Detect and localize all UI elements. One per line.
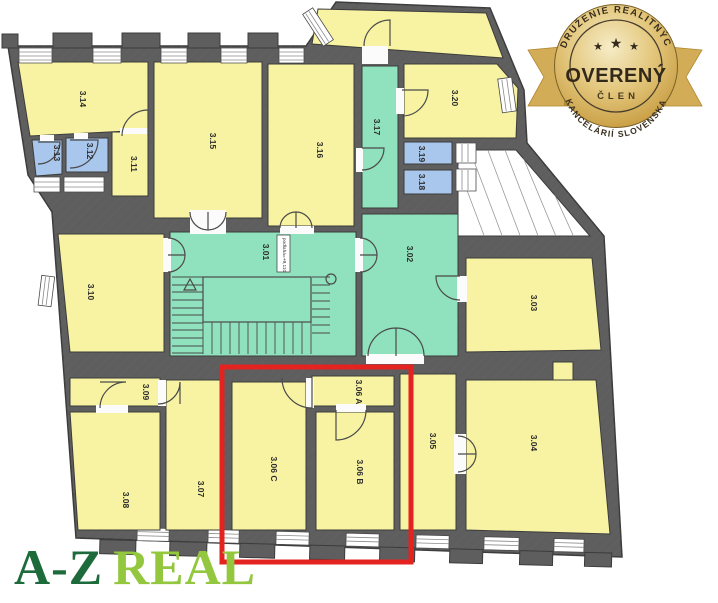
room-label-3-13: 3.13: [52, 145, 62, 162]
room-3-08: [70, 412, 160, 530]
room-label-3-11: 3.11: [129, 156, 139, 172]
room-3-04-niche: [553, 362, 573, 380]
badge-subtitle: ČLEN: [597, 90, 639, 102]
room-label-3-06b: 3.06 B: [355, 459, 365, 484]
badge-title: OVERENÝ: [565, 63, 666, 87]
room-label-3-06a: 3.06 A: [354, 380, 364, 405]
room-3-06b: [316, 412, 394, 530]
badge-star-right: ★: [629, 40, 639, 53]
room-3-16: [268, 64, 354, 226]
room-3-10: [58, 234, 164, 352]
room-3-07: [166, 380, 224, 530]
room-label-3-17: 3.17: [372, 119, 382, 136]
courtyard: [458, 150, 590, 236]
room-3-15: [154, 62, 262, 218]
room-label-3-09: 3.09: [141, 384, 151, 401]
room-label-3-06c: 3.06 C: [269, 456, 279, 481]
room-3-10-window: [38, 275, 55, 306]
sill-windows: [34, 177, 104, 192]
room-label-3-07: 3.07: [196, 481, 206, 498]
badge-star-left: ★: [593, 40, 603, 53]
room-3-04: [466, 380, 610, 534]
room-label-3-03: 3.03: [529, 295, 539, 312]
room-label-3-18: 3.18: [417, 174, 427, 191]
room-label-3-02: 3.02: [405, 246, 415, 263]
room-label-3-16: 3.16: [315, 142, 325, 159]
agency-logo: A-ZREAL: [14, 538, 256, 596]
room-3-06c: [232, 382, 306, 530]
logo-text-az: A-Z: [14, 539, 103, 595]
room-label-3-01: 3.01: [261, 244, 271, 261]
room-label-3-19: 3.19: [417, 146, 427, 163]
room-3-06a: [312, 376, 394, 406]
floor-plan-svg: podlaha=+9,110 3.01 3.02 3.03 3.04 3.05 …: [0, 0, 718, 603]
elevation-label: podlaha=+9,110: [281, 238, 287, 273]
room-3-02: [362, 214, 458, 356]
room-label-3-20: 3.20: [450, 90, 460, 107]
room-label-3-14: 3.14: [78, 91, 88, 108]
room-label-3-12: 3.12: [85, 143, 95, 160]
room-label-3-08: 3.08: [121, 492, 131, 509]
room-label-3-15: 3.15: [208, 133, 218, 150]
screenshot-stage: podlaha=+9,110 3.01 3.02 3.03 3.04 3.05 …: [0, 0, 718, 603]
room-3-19: [404, 142, 452, 164]
room-label-3-05: 3.05: [428, 433, 438, 450]
badge-star-center: ★: [610, 36, 623, 52]
room-3-17: [362, 66, 398, 208]
room-label-3-10: 3.10: [86, 284, 96, 301]
logo-text-real: REAL: [113, 539, 256, 595]
room-label-3-04: 3.04: [529, 435, 539, 452]
room-3-18: [404, 170, 452, 194]
room-3-05: [400, 374, 456, 530]
